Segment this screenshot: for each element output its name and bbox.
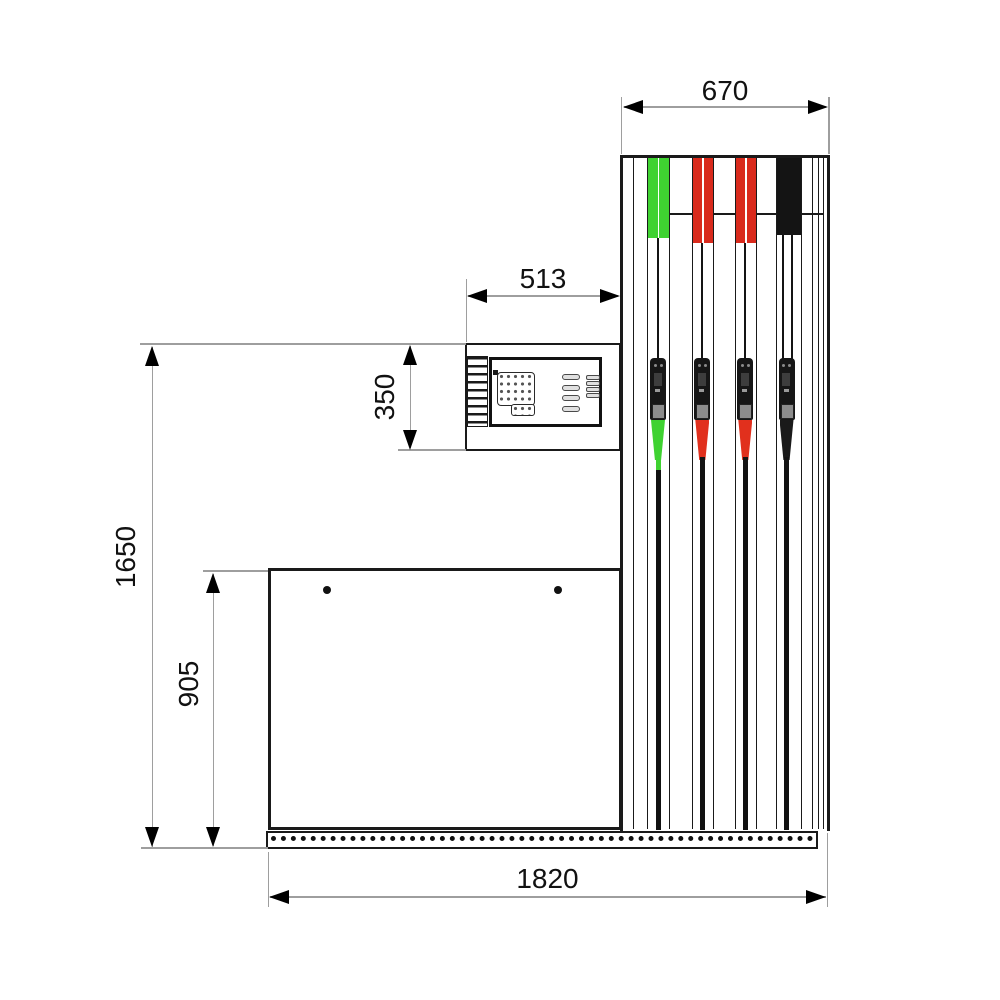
pillar-rail-line <box>776 158 777 829</box>
nozzle-spout <box>780 420 794 460</box>
display-slot <box>562 374 580 380</box>
plinth-dotted-strip <box>271 836 813 841</box>
arrow-down-icon <box>206 827 220 847</box>
dim-label-cabinet-height: 905 <box>174 629 204 739</box>
pillar-frame <box>620 155 830 831</box>
nozzle-latch <box>654 373 662 386</box>
pillar-rail-line <box>818 158 819 829</box>
nozzle-mark <box>699 389 704 392</box>
pillar-rail-line <box>633 158 634 829</box>
dim-line-cabinet-height <box>213 574 215 846</box>
arrow-up-icon <box>145 346 159 366</box>
hose-line <box>701 243 703 358</box>
hose-drop <box>743 470 748 830</box>
keypad-extension <box>511 404 535 416</box>
display-slot <box>562 406 580 412</box>
cabinet-bolt-right <box>554 586 562 594</box>
arrow-up-icon <box>206 573 220 593</box>
pillar-rail-line <box>692 158 693 829</box>
extension-line <box>140 343 466 345</box>
nozzle-red-1 <box>693 356 711 476</box>
hose-drop <box>656 470 661 830</box>
keypad <box>497 372 535 406</box>
arrow-down-icon <box>145 827 159 847</box>
pillar-rail-line <box>812 158 813 829</box>
nozzle-rivet <box>698 364 701 367</box>
nozzle-spout <box>651 420 665 460</box>
nozzle-latch <box>698 373 706 386</box>
dim-line-head-width <box>468 295 618 297</box>
nozzle-rivet <box>788 364 791 367</box>
hose-line <box>782 235 784 360</box>
pillar-divider-line <box>669 213 692 215</box>
nozzle-spout <box>695 420 709 460</box>
nozzle-rivet <box>747 364 750 367</box>
dim-label-pillar-width: 670 <box>622 76 828 106</box>
nozzle-green <box>649 356 667 476</box>
extension-line <box>141 847 268 849</box>
nozzle-rivet <box>654 364 657 367</box>
pillar-divider-line <box>756 213 776 215</box>
hose-cap-centerline <box>745 158 747 243</box>
hose-cap-centerline <box>658 158 660 238</box>
pillar-rail-line <box>823 158 824 829</box>
extension-line <box>828 97 830 154</box>
nozzle-mark <box>655 389 660 392</box>
arrow-up-icon <box>403 345 417 365</box>
hose-cap-black <box>777 158 802 235</box>
display-slot <box>562 385 580 391</box>
dim-line-overall-width <box>270 896 826 898</box>
display-slot-small <box>586 381 600 386</box>
hose-line <box>791 235 793 360</box>
nozzle-grip <box>696 404 709 419</box>
dim-label-head-width: 513 <box>466 264 620 294</box>
hose-line <box>744 243 746 358</box>
nozzle-black <box>778 356 796 476</box>
dim-label-overall-height: 1650 <box>111 502 141 612</box>
nozzle-grip <box>739 404 752 419</box>
nozzle-mark <box>784 389 789 392</box>
arrow-down-icon <box>403 430 417 450</box>
display-slot-small <box>586 393 600 398</box>
hose-drop <box>784 470 789 830</box>
extension-line <box>203 570 268 572</box>
nozzle-grip <box>652 404 665 419</box>
pillar-divider-line <box>713 213 735 215</box>
dim-label-overall-width: 1820 <box>269 864 826 894</box>
nozzle-mark <box>742 389 747 392</box>
nozzle-latch <box>741 373 749 386</box>
hose-cap-centerline <box>702 158 704 243</box>
nozzle-rivet <box>704 364 707 367</box>
nozzle-rivet <box>782 364 785 367</box>
nozzle-latch <box>782 373 790 386</box>
pillar-rail-line <box>713 158 714 829</box>
hose-drop <box>700 470 705 830</box>
pillar-rail-line <box>647 158 648 829</box>
pillar-rail-line <box>801 158 802 829</box>
pillar-rail-line <box>756 158 757 829</box>
pillar-rail-line <box>735 158 736 829</box>
nozzle-rivet <box>660 364 663 367</box>
nozzle-red-2 <box>736 356 754 476</box>
cabinet-body <box>268 568 622 830</box>
nozzle-spout <box>738 420 752 460</box>
dim-line-pillar-width <box>624 106 826 108</box>
nozzle-rivet <box>741 364 744 367</box>
dim-line-overall-height <box>152 347 154 847</box>
cabinet-bolt-left <box>323 586 331 594</box>
display-slot <box>562 395 580 401</box>
extension-line <box>827 833 829 907</box>
dispenser-drawing: 670 513 350 1650 905 1820 <box>0 0 1000 1000</box>
pillar-divider-line <box>801 213 823 215</box>
pillar-rail-line <box>669 158 670 829</box>
dim-label-head-height: 350 <box>370 352 400 442</box>
display-slot-small <box>586 375 600 380</box>
printer-grille <box>467 356 488 427</box>
nozzle-grip <box>781 404 794 419</box>
display-slot-small <box>586 387 600 392</box>
hose-line <box>657 238 659 358</box>
